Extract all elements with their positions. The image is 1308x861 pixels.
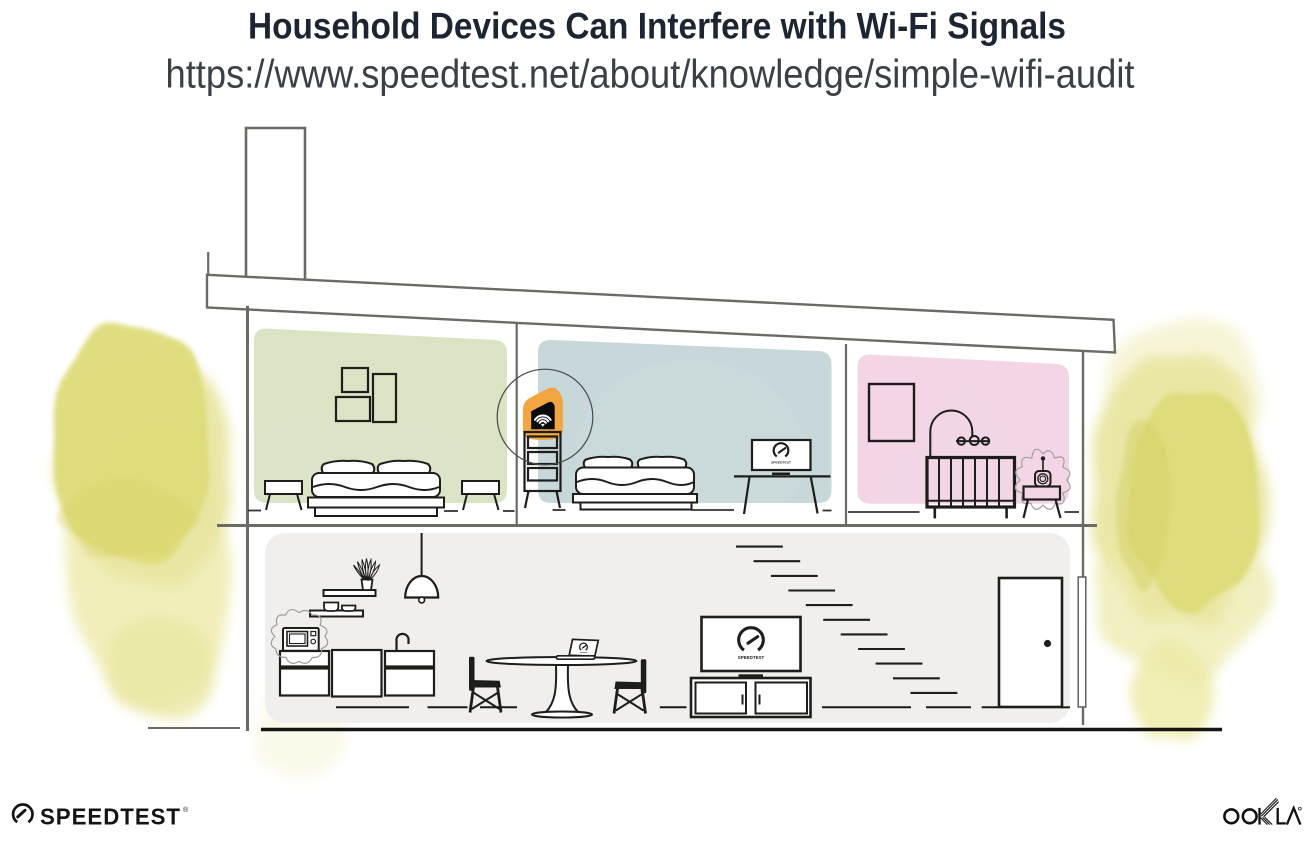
svg-text:SPEEDTEST: SPEEDTEST — [771, 461, 791, 465]
svg-text:SPEEDTEST: SPEEDTEST — [738, 655, 765, 660]
svg-text:SPEEDTEST: SPEEDTEST — [40, 804, 181, 830]
svg-text:Household Devices Can Interfer: Household Devices Can Interfere with Wi-… — [248, 6, 1066, 47]
svg-text:https://www.speedtest.net/abou: https://www.speedtest.net/about/knowledg… — [166, 53, 1135, 97]
svg-text:®: ® — [183, 806, 189, 814]
